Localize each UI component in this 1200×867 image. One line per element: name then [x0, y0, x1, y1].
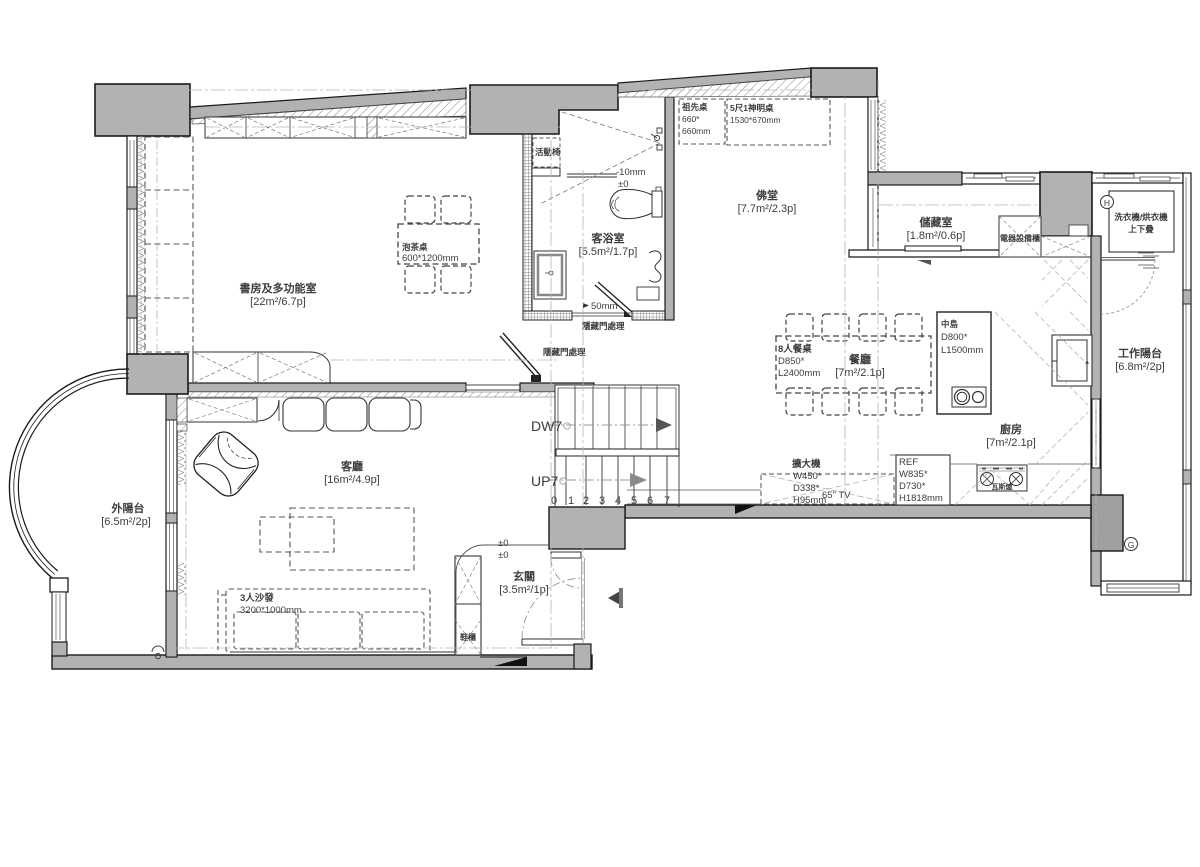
svg-text:上下疊: 上下疊	[1128, 224, 1154, 234]
svg-text:5: 5	[631, 495, 637, 507]
svg-text:書房及多功能室: 書房及多功能室	[240, 281, 317, 295]
svg-text:洗衣機/烘衣機: 洗衣機/烘衣機	[1114, 212, 1168, 222]
svg-text:4: 4	[615, 495, 621, 507]
svg-text:H: H	[1104, 198, 1110, 208]
svg-text:隱藏門處理: 隱藏門處理	[543, 347, 586, 357]
svg-text:[22m²/6.7p]: [22m²/6.7p]	[250, 296, 306, 308]
svg-text:廚房: 廚房	[1000, 422, 1022, 436]
svg-text:1530*670mm: 1530*670mm	[730, 115, 781, 125]
svg-text:中島: 中島	[941, 319, 959, 329]
svg-text:D800*: D800*	[941, 332, 968, 343]
svg-text:H1818mm: H1818mm	[899, 493, 943, 504]
svg-text:3人沙發: 3人沙發	[240, 592, 274, 604]
svg-text:±0: ±0	[618, 179, 629, 190]
svg-text:[7m²/2.1p]: [7m²/2.1p]	[986, 437, 1036, 449]
svg-text:[6.8m²/2p]: [6.8m²/2p]	[1115, 361, 1165, 373]
svg-text:儲藏室: 儲藏室	[919, 215, 953, 229]
svg-text:REF: REF	[899, 457, 918, 468]
svg-text:餐廳: 餐廳	[848, 352, 871, 366]
svg-text:D338*: D338*	[793, 483, 820, 494]
svg-text:G: G	[1128, 540, 1135, 550]
svg-text:UP7: UP7	[531, 473, 558, 489]
svg-text:-10mm: -10mm	[616, 167, 646, 178]
svg-text:W835*: W835*	[899, 469, 928, 480]
svg-text:祖先桌: 祖先桌	[681, 102, 708, 112]
svg-text:[5.5m²/1.7p]: [5.5m²/1.7p]	[579, 246, 638, 258]
svg-text:D850*: D850*	[778, 356, 805, 367]
svg-text:L1500mm: L1500mm	[941, 345, 983, 356]
svg-text:佛堂: 佛堂	[755, 188, 778, 202]
svg-text:玄關: 玄關	[513, 569, 535, 583]
svg-text:0: 0	[551, 495, 557, 507]
svg-text:隱藏門處理: 隱藏門處理	[582, 321, 625, 331]
svg-text:D730*: D730*	[899, 481, 926, 492]
svg-text:[16m²/4.9p]: [16m²/4.9p]	[324, 474, 380, 486]
svg-text:660mm: 660mm	[682, 126, 710, 136]
svg-text:[7.7m²/2.3p]: [7.7m²/2.3p]	[738, 203, 797, 215]
svg-text:±0: ±0	[498, 550, 509, 561]
svg-text:5尺1神明桌: 5尺1神明桌	[730, 103, 774, 113]
svg-text:3: 3	[599, 495, 605, 507]
svg-text:擴大機: 擴大機	[792, 458, 821, 470]
svg-text:[1.8m²/0.6p]: [1.8m²/0.6p]	[907, 230, 966, 242]
svg-text:L2400mm: L2400mm	[778, 368, 820, 379]
svg-text:660*: 660*	[682, 114, 700, 124]
svg-text:2: 2	[583, 495, 589, 507]
svg-text:[6.5m²/2p]: [6.5m²/2p]	[101, 516, 151, 528]
svg-text:W450*: W450*	[793, 471, 822, 482]
svg-text:客浴室: 客浴室	[591, 231, 625, 245]
svg-text:[7m²/2.1p]: [7m²/2.1p]	[835, 367, 885, 379]
svg-text:7: 7	[664, 495, 670, 507]
svg-text:3200*1000mm: 3200*1000mm	[240, 605, 302, 616]
svg-text:工作陽台: 工作陽台	[1118, 346, 1162, 360]
svg-text:6: 6	[647, 495, 653, 507]
svg-text:活動椅: 活動椅	[535, 147, 561, 157]
svg-text:1: 1	[568, 495, 574, 507]
svg-text:±0: ±0	[498, 538, 509, 549]
svg-text:65" TV: 65" TV	[822, 490, 851, 501]
svg-text:50mm: 50mm	[591, 301, 617, 312]
svg-text:外陽台: 外陽台	[111, 501, 145, 515]
svg-text:600*1200mm: 600*1200mm	[402, 253, 459, 264]
svg-text:DW7: DW7	[531, 418, 562, 434]
svg-text:客廳: 客廳	[340, 459, 363, 473]
svg-text:鞋櫃: 鞋櫃	[460, 632, 476, 642]
svg-text:泡茶桌: 泡茶桌	[402, 242, 428, 252]
svg-text:8人餐桌: 8人餐桌	[778, 343, 812, 355]
svg-text:電器設備櫃: 電器設備櫃	[1000, 233, 1040, 243]
